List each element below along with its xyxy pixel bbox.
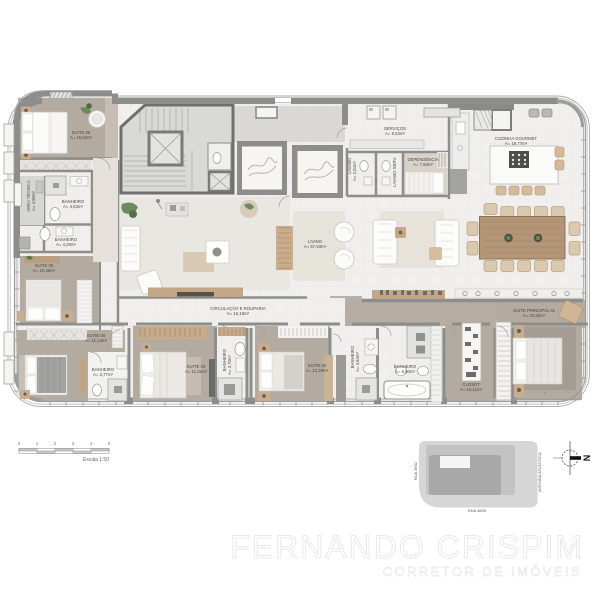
svg-text:A= 2,04m²: A= 2,04m² (352, 160, 357, 181)
svg-text:RUA 4602: RUA 4602 (413, 461, 418, 480)
svg-text:A= 4,53m²: A= 4,53m² (63, 204, 84, 209)
svg-text:A= 12,29m²: A= 12,29m² (306, 368, 329, 373)
svg-text:RUA 4600: RUA 4600 (468, 508, 487, 513)
svg-text:A= 15,11m²: A= 15,11m² (460, 387, 483, 392)
svg-text:AVENIDA ATLÂNTICA: AVENIDA ATLÂNTICA (537, 452, 542, 492)
svg-text:A= 11,13m²: A= 11,13m² (85, 338, 108, 343)
svg-text:A= 10,46m²: A= 10,46m² (33, 268, 56, 273)
svg-text:A= 4,84m²: A= 4,84m² (355, 351, 360, 372)
svg-text:A= 6,90m²: A= 6,90m² (395, 369, 416, 374)
svg-text:A= 15,62m²: A= 15,62m² (70, 135, 93, 140)
svg-text:A= 22,80m²: A= 22,80m² (523, 313, 546, 318)
svg-text:A= 57,63m²: A= 57,63m² (304, 244, 327, 249)
svg-text:Escala 1:50: Escala 1:50 (83, 457, 109, 463)
svg-text:A= 3,70m²: A= 3,70m² (227, 354, 232, 375)
svg-text:A= 4,50m²: A= 4,50m² (31, 190, 36, 211)
svg-text:FERNANDO CRISPIM: FERNANDO CRISPIM (230, 529, 584, 565)
svg-text:A= 11,81m²: A= 11,81m² (185, 369, 208, 374)
svg-text:A= 18,77m²: A= 18,77m² (505, 141, 528, 146)
svg-text:A= 3,77m²: A= 3,77m² (93, 372, 114, 377)
svg-text:A= 4,29m²: A= 4,29m² (56, 242, 77, 247)
svg-text:A= 9,63m²: A= 9,63m² (385, 131, 406, 136)
svg-text:A= 16,16m²: A= 16,16m² (227, 311, 250, 316)
svg-text:CORRETOR DE IMÓVEIS: CORRETOR DE IMÓVEIS (383, 564, 582, 579)
svg-text:LAVABO SERV.: LAVABO SERV. (392, 157, 397, 187)
svg-text:A= 7,93m²: A= 7,93m² (413, 162, 434, 167)
svg-text:N: N (582, 455, 592, 462)
